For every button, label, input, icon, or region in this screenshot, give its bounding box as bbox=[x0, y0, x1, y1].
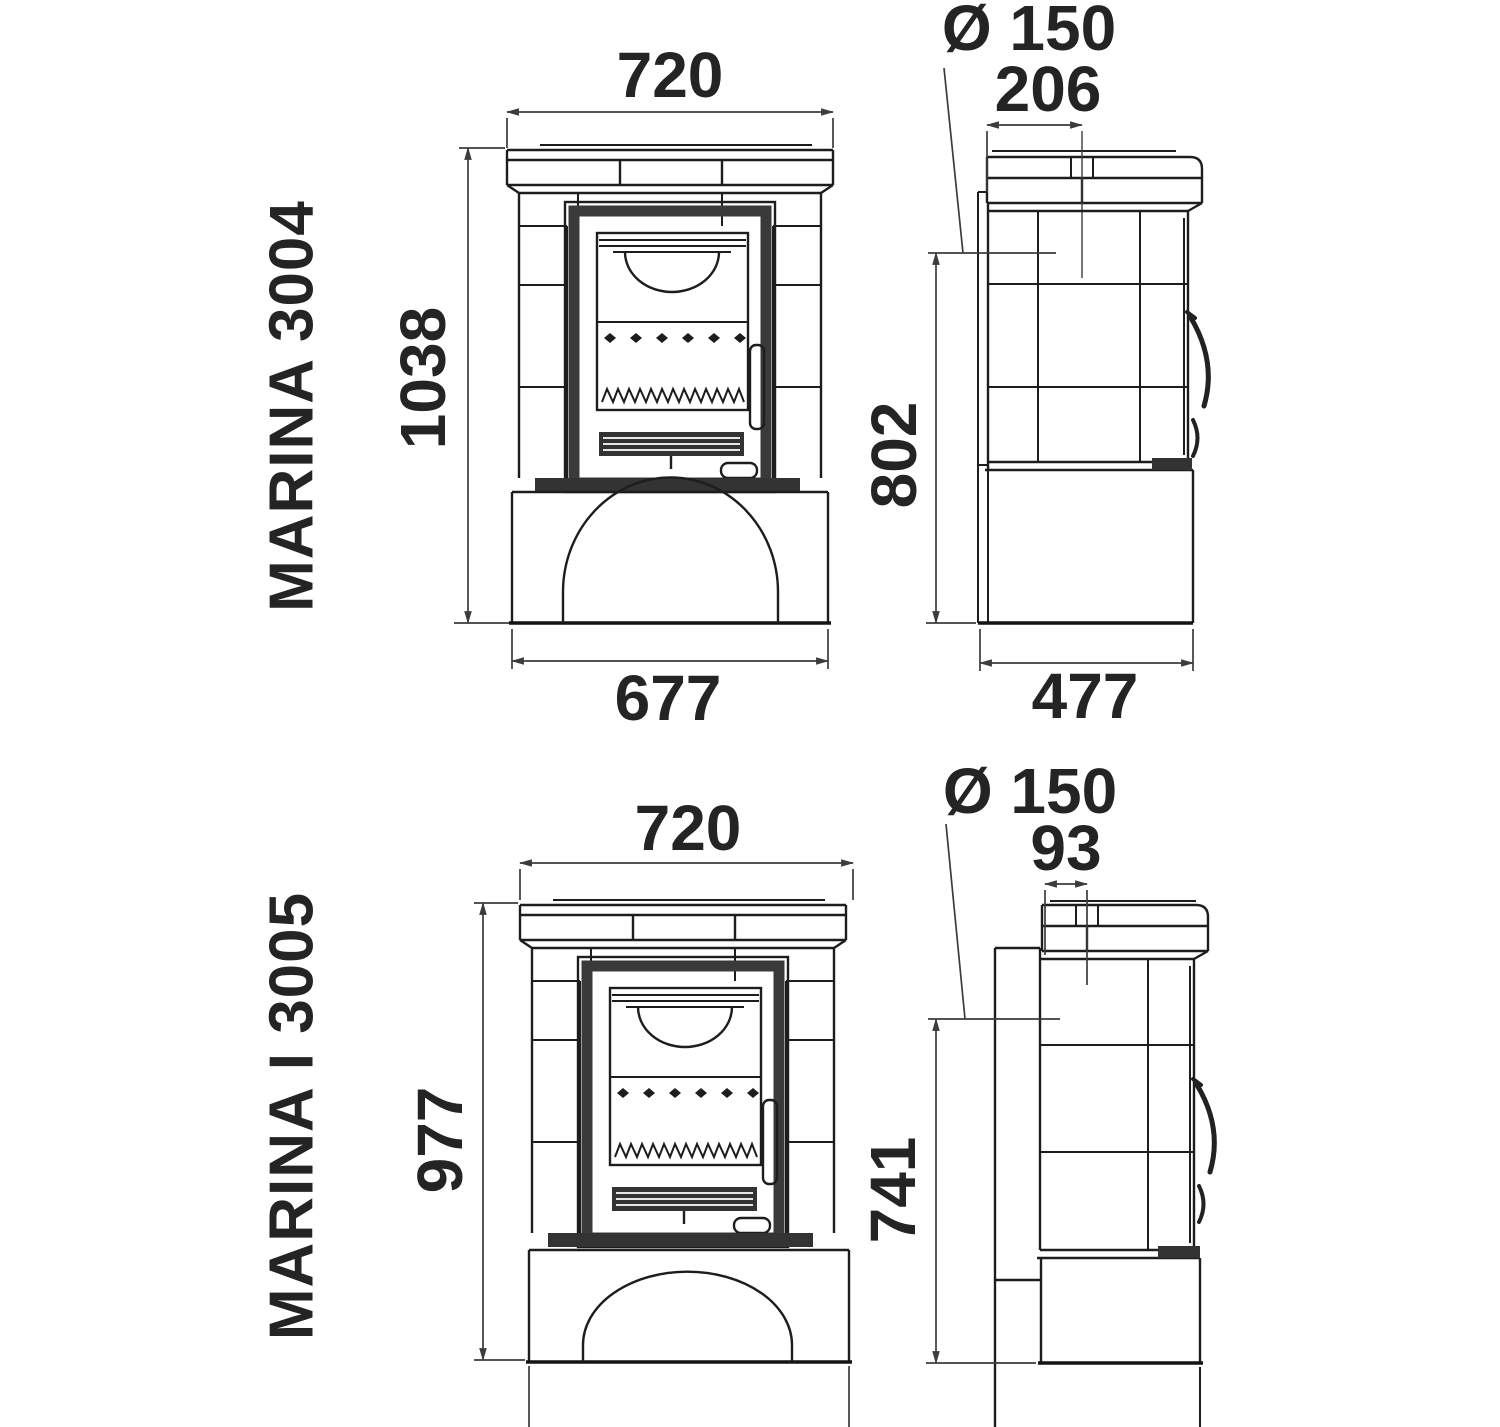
dim-height-3005: 977 bbox=[404, 1087, 476, 1194]
dim-flue-offset-3005: 93 bbox=[1030, 812, 1101, 884]
dim-height-3004: 1038 bbox=[387, 307, 459, 449]
side-handle bbox=[1197, 1085, 1214, 1172]
front-view-3005 bbox=[520, 900, 846, 1247]
side-body bbox=[1040, 959, 1194, 1250]
stove-dimension-drawing: 720 1038 677 Ø 150 206 802 477 MARINA 30… bbox=[0, 0, 1500, 1427]
side-tile-joints bbox=[1040, 959, 1194, 1250]
dim-width-base-3004: 677 bbox=[615, 662, 722, 734]
plinth-arch bbox=[583, 1272, 792, 1362]
side-body bbox=[988, 203, 1188, 470]
rear-flue-strip bbox=[978, 192, 988, 623]
marina-3005-views: 720 977 Ø 150 93 741 MARINA I 3005 bbox=[257, 755, 1214, 1427]
dim-width-top-3005: 720 bbox=[635, 792, 742, 864]
drawing-svg: 720 1038 677 Ø 150 206 802 477 MARINA 30… bbox=[0, 0, 1500, 1427]
flue-leader-3004 bbox=[944, 68, 963, 253]
side-plinth bbox=[1041, 1258, 1200, 1363]
side-sill bbox=[1152, 458, 1192, 470]
plinth-arch bbox=[563, 477, 778, 623]
side-view-3004 bbox=[978, 131, 1208, 623]
marina-3004-views: 720 1038 677 Ø 150 206 802 477 MARINA 30… bbox=[257, 0, 1208, 734]
side-view-3005 bbox=[995, 901, 1214, 1427]
cutoff-extension-lines bbox=[529, 1366, 849, 1427]
side-tile-joints bbox=[988, 211, 1188, 462]
side-cap bbox=[987, 157, 1202, 203]
dim-rear-flue-height-3004: 802 bbox=[858, 402, 930, 509]
side-cap bbox=[1042, 905, 1208, 951]
side-handle bbox=[1191, 318, 1208, 406]
side-sill bbox=[1158, 1246, 1200, 1258]
flue-leader-3005 bbox=[946, 824, 965, 1019]
model-label-3005: MARINA I 3005 bbox=[257, 892, 326, 1340]
dim-flue-offset-3004: 206 bbox=[995, 53, 1102, 125]
dim-depth-3004: 477 bbox=[1032, 660, 1139, 732]
dim-rear-flue-height-3005: 741 bbox=[857, 1137, 929, 1244]
model-label-3004: MARINA 3004 bbox=[257, 200, 326, 612]
front-view-3004 bbox=[507, 145, 833, 492]
plinth-3005 bbox=[526, 1250, 852, 1427]
dim-width-top-3004: 720 bbox=[617, 39, 724, 111]
plinth-3004 bbox=[509, 477, 831, 623]
